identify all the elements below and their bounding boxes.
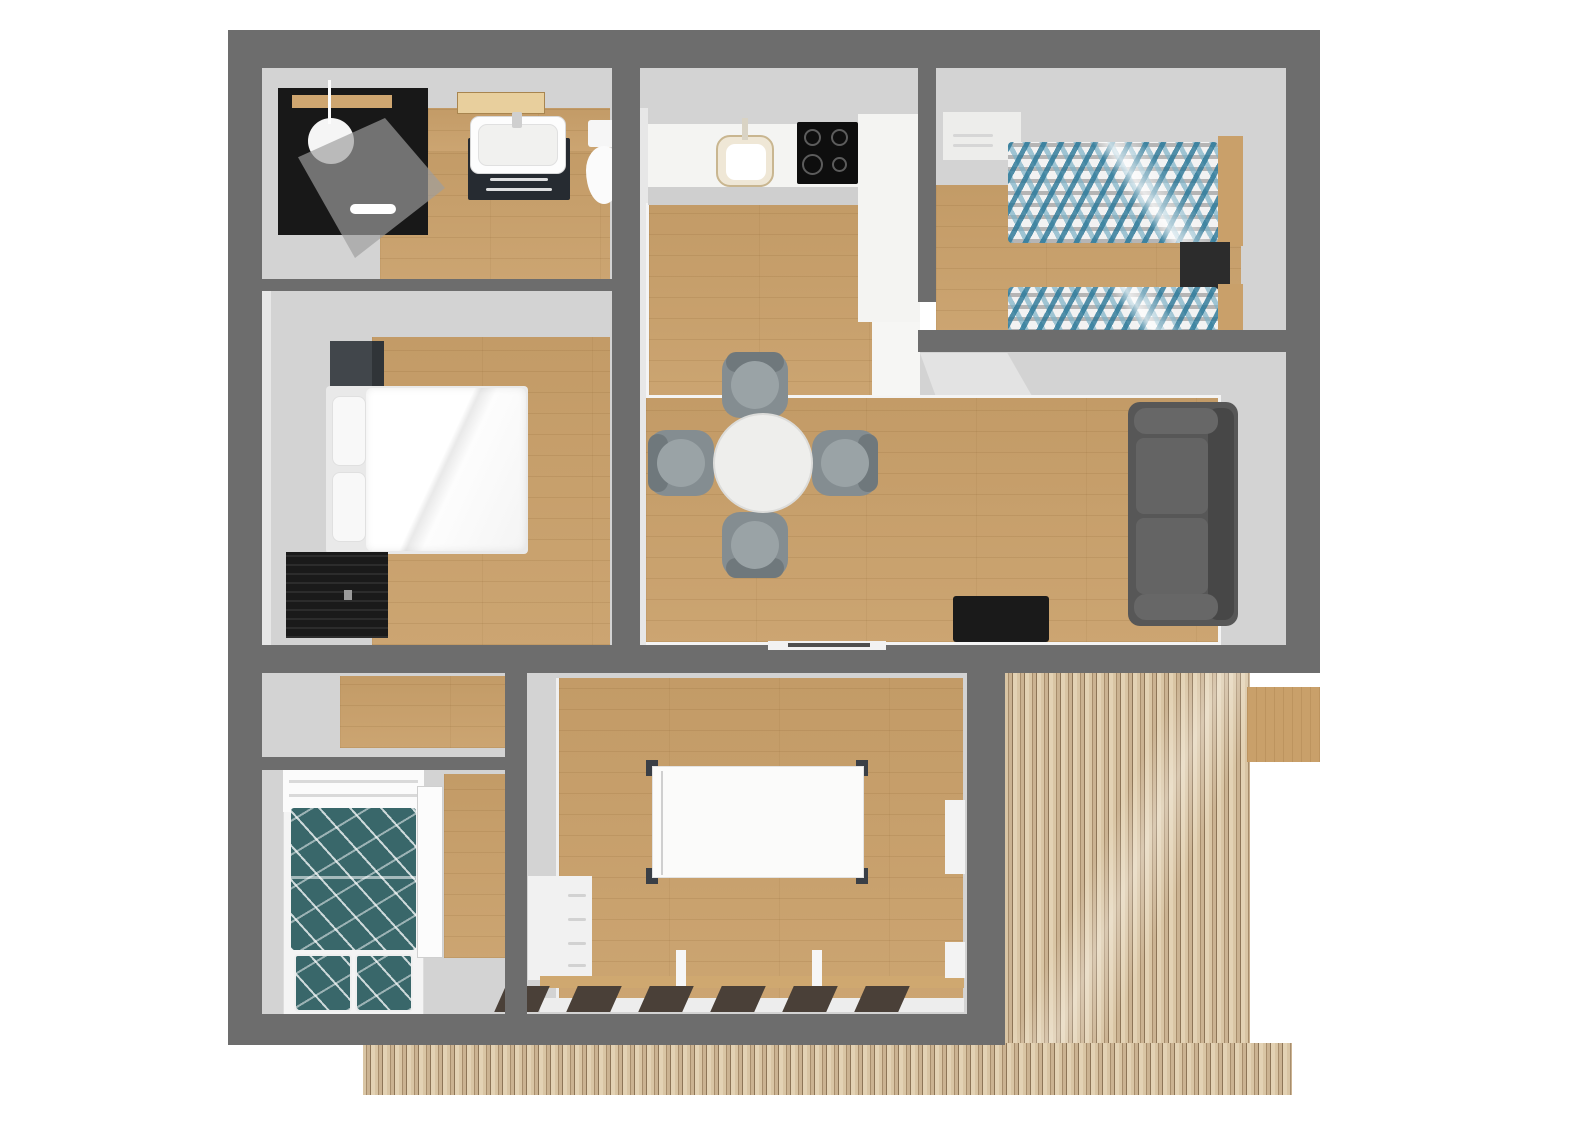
- nightstand-shadow: [372, 341, 384, 389]
- garden-table: [652, 766, 864, 878]
- twin-bed-headboard: [1218, 136, 1243, 246]
- wall-top: [228, 30, 1320, 68]
- kitchen-tall-unit: [858, 114, 920, 322]
- kitchen-counter-shadow: [648, 186, 858, 205]
- bunk-bed-duvet: [291, 808, 416, 950]
- deck-main: [1005, 673, 1250, 1095]
- vanity-mirror-door: [457, 92, 545, 114]
- cooktop-burner: [804, 129, 821, 146]
- wall-left-lower: [228, 660, 262, 1045]
- twin-dresser-drawer-line: [953, 134, 993, 137]
- sofa-cushion: [1136, 518, 1208, 594]
- double-bed-pillow: [332, 396, 366, 466]
- double-bed-pillow: [332, 472, 366, 542]
- cooktop: [797, 122, 858, 184]
- wall-corridor: [505, 673, 527, 1014]
- garden-cabinet-drawer: [568, 942, 586, 945]
- dining-table-round: [713, 413, 813, 513]
- deck-bottom-strip: [363, 1043, 1292, 1095]
- chair-seat: [821, 439, 869, 487]
- bunk-duvet-seam: [291, 876, 416, 879]
- shower-door-handle: [350, 204, 396, 214]
- garden-window-right: [945, 942, 965, 978]
- sofa-armrest: [1134, 408, 1218, 434]
- sofa: [1128, 402, 1238, 626]
- sliding-door-track: [788, 643, 870, 647]
- chair-seat: [731, 361, 779, 409]
- bunk-bed-pillow: [355, 954, 413, 1012]
- vanity-drawer-line: [490, 178, 548, 181]
- bedroom-double-wall-face: [262, 291, 271, 647]
- chair-seat: [657, 439, 705, 487]
- twin-bed-duvet: [1008, 142, 1218, 243]
- kitchen-sink-bowl: [726, 144, 766, 180]
- wall-twin-left: [918, 60, 936, 302]
- garden-table-edge: [661, 771, 663, 875]
- dining-chair-west: [648, 430, 714, 496]
- wall-twin-bottom: [918, 330, 1286, 352]
- garden-cabinet-drawer: [568, 964, 586, 967]
- wall-right-lower: [967, 673, 1005, 1045]
- tv-bench: [953, 596, 1049, 642]
- chair-seat: [731, 521, 779, 569]
- nightstand-dark-gray: [330, 341, 384, 389]
- kitchen-tall-unit-lower: [872, 322, 920, 396]
- wall-bath-bedroom: [260, 279, 612, 291]
- garden-cabinet-white: [528, 876, 592, 980]
- double-bed-duvet: [366, 388, 526, 551]
- deck-doormat: [1247, 687, 1320, 762]
- garden-cabinet-drawer: [568, 894, 586, 897]
- sofa-cushion: [1136, 438, 1208, 514]
- twin-bed-headboard: [1218, 284, 1243, 333]
- bunk-bed-pillow: [294, 954, 352, 1012]
- sofa-armrest: [1134, 594, 1218, 620]
- twin-nightstand-dark: [1180, 242, 1230, 289]
- cooktop-burner: [832, 157, 847, 172]
- deck-sheen: [1005, 673, 1250, 1095]
- wall-left-upper: [228, 30, 262, 675]
- twin-dresser-drawer-line: [953, 144, 993, 147]
- shower-shelf-wood: [292, 95, 392, 108]
- wall-hall-bunk: [260, 757, 507, 770]
- vanity-faucet: [512, 112, 522, 128]
- wall-bath-kitchen: [612, 60, 640, 650]
- dresser-knob: [344, 590, 352, 600]
- cooktop-burner: [831, 129, 848, 146]
- bunk-canopy-rail: [289, 794, 418, 797]
- bunk-bed-canopy: [283, 768, 424, 812]
- wall-right-upper: [1286, 30, 1320, 673]
- cooktop-burner: [802, 154, 823, 175]
- vanity-drawer-line: [486, 188, 552, 191]
- dining-chair-south: [722, 512, 788, 578]
- dining-chair-east: [812, 430, 878, 496]
- kitchen-faucet: [742, 118, 748, 140]
- bunk-canopy-rail: [289, 780, 418, 783]
- bunk-room-open-door: [417, 786, 443, 958]
- wall-bottom-lower: [228, 1014, 1005, 1045]
- vanity-basin-bowl: [478, 124, 558, 166]
- floor-plan-canvas: [0, 0, 1596, 1121]
- sofa-backrest: [1208, 408, 1234, 620]
- garden-cabinet-drawer: [568, 918, 586, 921]
- dining-chair-north: [722, 352, 788, 418]
- twin-bed-duvet: [1008, 287, 1218, 333]
- dresser-black: [286, 552, 388, 638]
- shower-hose: [328, 80, 331, 124]
- garden-window-right: [945, 800, 965, 874]
- bunk-room-floor-wood: [444, 774, 505, 958]
- hallway-lower-floor-wood: [340, 676, 505, 748]
